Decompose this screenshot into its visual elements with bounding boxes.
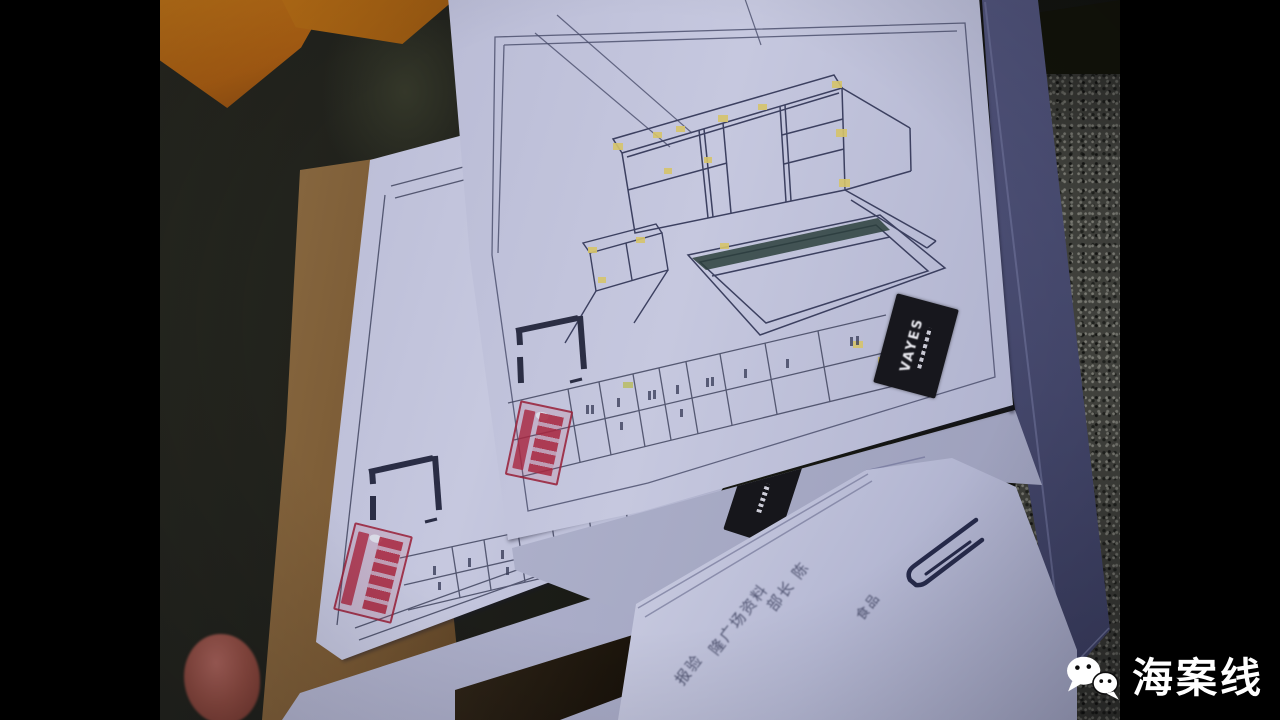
vayes-label-inner: VAYES: [898, 316, 934, 375]
black-label-text-marks: [756, 482, 770, 512]
letterbox-left: [0, 0, 160, 720]
watermark: 海案线: [1066, 640, 1278, 716]
fingertip: [184, 634, 260, 720]
floorplan-glyph-top: [516, 316, 584, 383]
wechat-icon: [1066, 654, 1122, 702]
floorplan-glyph-under: [369, 456, 439, 520]
stamp-highlight: [369, 533, 384, 544]
video-frame: VAYES 部长 陈 食品 隆广场资料 报验: [0, 0, 1280, 720]
paper-clip: [898, 514, 998, 599]
stamp-highlight: [535, 411, 549, 422]
letterbox-right: [1120, 0, 1280, 720]
watermark-text: 海案线: [1132, 658, 1264, 699]
